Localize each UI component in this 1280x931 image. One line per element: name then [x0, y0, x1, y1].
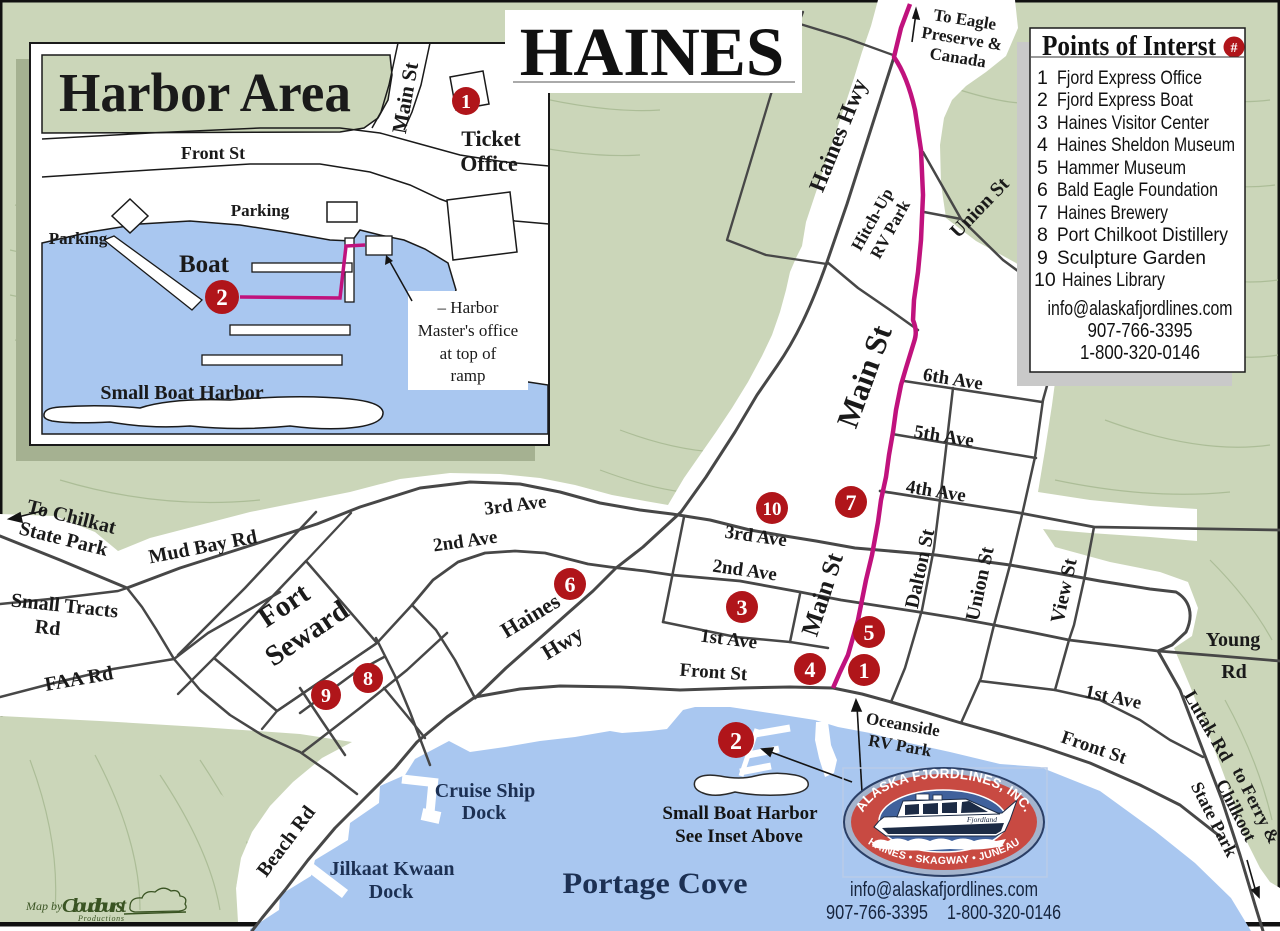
svg-text:Productions: Productions [77, 914, 124, 923]
svg-text:info@alaskafjordlines.com: info@alaskafjordlines.com [1048, 298, 1233, 320]
svg-text:1: 1 [859, 658, 870, 683]
svg-text:#: # [1231, 41, 1238, 56]
svg-text:9: 9 [1037, 247, 1048, 269]
svg-text:7: 7 [846, 490, 857, 515]
svg-text:4: 4 [805, 657, 816, 682]
svg-text:907-766-3395: 907-766-3395 [826, 902, 928, 924]
svg-text:Harbor Area: Harbor Area [59, 62, 351, 123]
svg-text:Dock: Dock [369, 881, 414, 903]
svg-text:Young: Young [1206, 629, 1260, 651]
svg-text:Fjord Express Office: Fjord Express Office [1057, 67, 1202, 89]
svg-text:Cruise Ship: Cruise Ship [435, 780, 536, 802]
svg-text:at top of: at top of [440, 344, 497, 363]
svg-text:Fjord Express Boat: Fjord Express Boat [1057, 89, 1193, 111]
svg-text:907-766-3395: 907-766-3395 [1088, 320, 1193, 342]
svg-text:Sculpture Garden: Sculpture Garden [1057, 247, 1206, 269]
svg-text:Hammer Museum: Hammer Museum [1057, 157, 1186, 179]
svg-text:Port Chilkoot Distillery: Port Chilkoot Distillery [1057, 224, 1228, 246]
svg-text:4: 4 [1037, 134, 1048, 156]
svg-text:Jilkaat Kwaan: Jilkaat Kwaan [329, 858, 454, 880]
svg-text:Boat: Boat [179, 251, 230, 278]
svg-text:10: 10 [763, 499, 782, 520]
svg-text:2: 2 [730, 729, 742, 755]
svg-text:Fjordland: Fjordland [966, 815, 997, 824]
svg-text:Haines Visitor Center: Haines Visitor Center [1057, 112, 1209, 134]
svg-text:3: 3 [1037, 112, 1048, 134]
svg-text:Ticket: Ticket [461, 126, 521, 151]
svg-text:Parking: Parking [231, 201, 290, 220]
svg-text:1-800-320-0146: 1-800-320-0146 [1080, 342, 1200, 364]
svg-text:Office: Office [460, 151, 518, 176]
svg-text:8: 8 [1037, 224, 1048, 246]
svg-text:9: 9 [321, 685, 331, 707]
svg-text:Master's office: Master's office [418, 321, 518, 340]
svg-text:See Inset Above: See Inset Above [675, 826, 803, 847]
svg-text:Haines Brewery: Haines Brewery [1057, 202, 1168, 224]
svg-text:5: 5 [1037, 157, 1048, 179]
svg-text:Parking: Parking [49, 229, 108, 248]
svg-text:Map by: Map by [25, 899, 63, 913]
svg-text:ramp: ramp [451, 366, 486, 385]
svg-text:Small Boat Harbor: Small Boat Harbor [100, 382, 263, 404]
svg-text:6: 6 [565, 572, 576, 597]
svg-text:Dock: Dock [462, 802, 507, 824]
svg-text:5: 5 [864, 620, 875, 645]
svg-text:1: 1 [1037, 67, 1048, 89]
svg-text:Haines Sheldon Museum: Haines Sheldon Museum [1057, 134, 1235, 156]
svg-text:1: 1 [461, 91, 471, 113]
svg-text:2: 2 [1037, 89, 1048, 111]
svg-text:10: 10 [1034, 269, 1056, 291]
svg-text:2: 2 [216, 285, 228, 310]
svg-text:info@alaskafjordlines.com: info@alaskafjordlines.com [850, 879, 1038, 901]
svg-text:8: 8 [363, 668, 373, 690]
svg-text:Portage Cove: Portage Cove [563, 867, 748, 900]
svg-text:7: 7 [1037, 202, 1048, 224]
svg-text:Small Boat Harbor: Small Boat Harbor [662, 803, 818, 824]
svg-text:Rd: Rd [34, 616, 62, 641]
svg-text:3: 3 [737, 595, 748, 620]
svg-text:– Harbor: – Harbor [437, 298, 499, 317]
svg-text:Rd: Rd [1221, 661, 1247, 683]
svg-text:Bald Eagle Foundation: Bald Eagle Foundation [1057, 179, 1218, 201]
svg-text:1-800-320-0146: 1-800-320-0146 [947, 902, 1061, 924]
svg-text:Haines Library: Haines Library [1062, 269, 1165, 291]
svg-text:Front St: Front St [181, 143, 245, 163]
svg-text:6: 6 [1037, 179, 1048, 201]
svg-text:HAINES: HAINES [520, 14, 785, 90]
